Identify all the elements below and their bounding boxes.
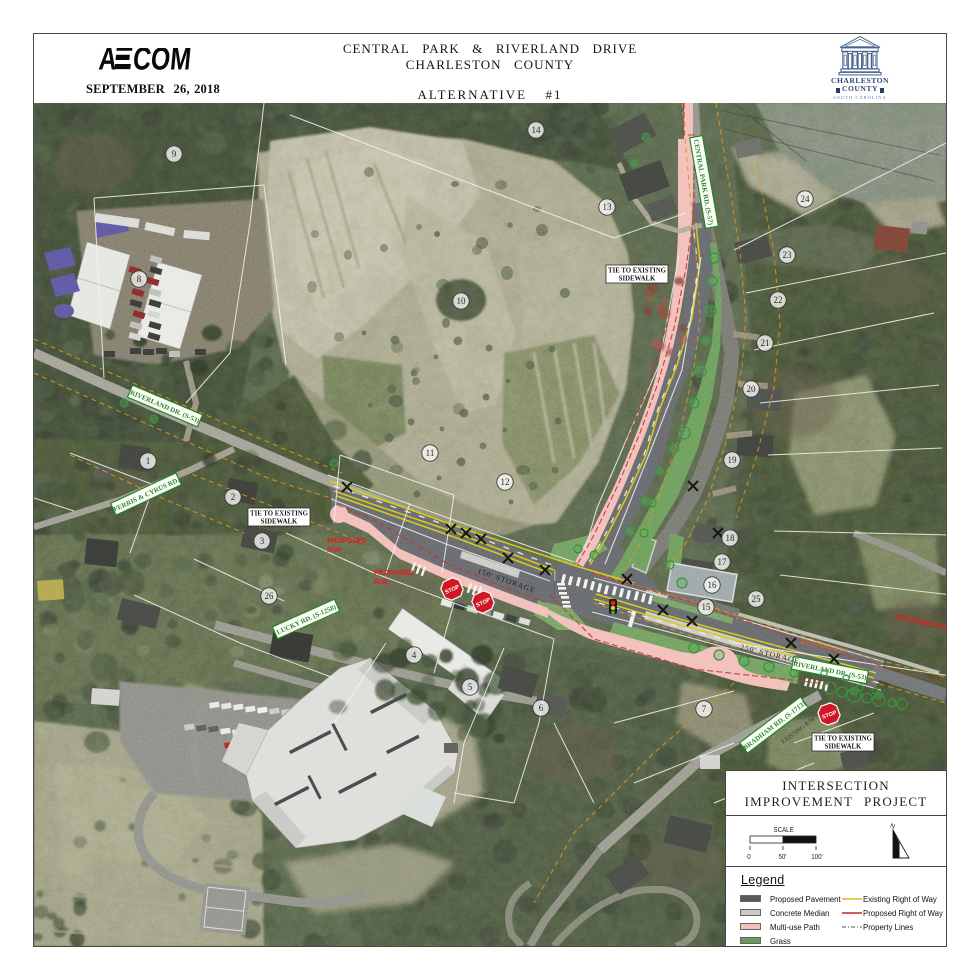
- svg-text:100': 100': [811, 854, 822, 862]
- svg-text:0: 0: [747, 854, 751, 862]
- svg-text:SCALE: SCALE: [774, 827, 795, 835]
- svg-text:50': 50': [778, 854, 786, 862]
